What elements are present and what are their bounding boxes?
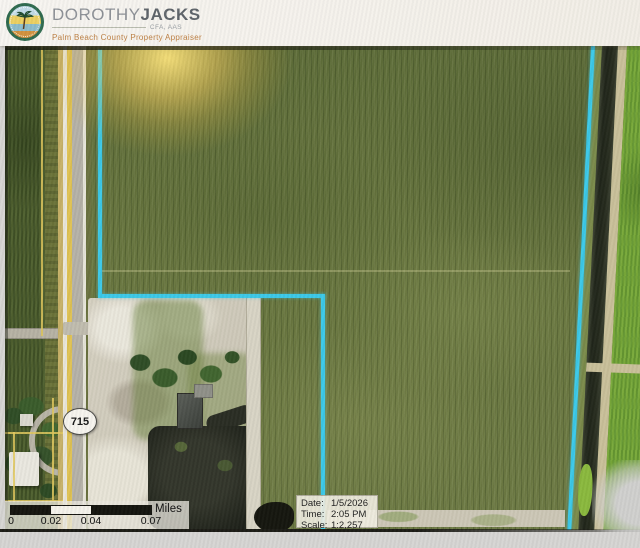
site-header: DOROTHYJACKS CFA, AAS Palm Beach County … [0, 0, 640, 46]
scale-tick-2: 0.04 [81, 515, 101, 527]
scale-tick-0: 0 [8, 515, 14, 527]
map-edge-left [5, 46, 8, 530]
shed-west [20, 414, 33, 426]
county-seal-logo[interactable] [6, 3, 44, 41]
map-canvas[interactable]: 715 0 0.02 0.04 0.07 Miles Date:1/5/2026… [5, 46, 640, 530]
brand-block: DOROTHYJACKS CFA, AAS Palm Beach County … [52, 6, 252, 42]
credentials-rule [52, 27, 146, 28]
parcel-line-yellow-v1 [13, 432, 15, 502]
field-seam-line [100, 270, 570, 272]
scale-unit-label: Miles [155, 503, 182, 515]
scale-tick-1: 0.02 [41, 515, 61, 527]
brand-credentials-row: CFA, AAS [52, 24, 182, 31]
map-edge-top [5, 46, 640, 50]
parcel-boundary-notch-top [98, 294, 325, 298]
time-value: 2:05 PM [331, 509, 366, 520]
parcel-line-yellow-v2 [52, 398, 54, 502]
time-label: Time: [301, 509, 331, 520]
canal-path-west [5, 328, 63, 339]
scale-bar [10, 505, 152, 515]
map-edge-bottom [0, 529, 640, 532]
parcel-line-yellow-vertical [41, 46, 43, 336]
scale-bar-segment [91, 506, 151, 514]
farm-driveway [63, 322, 91, 335]
brand-name: DOROTHYJACKS [52, 6, 252, 23]
date-value: 1/5/2026 [331, 498, 368, 509]
info-date-row: Date:1/5/2026 [301, 498, 377, 509]
brand-credentials: CFA, AAS [150, 24, 182, 31]
route-715-label: 715 [71, 416, 89, 428]
farm-path-vertical [246, 298, 261, 530]
farm-building [177, 393, 203, 429]
scale-bar-segment [11, 506, 51, 514]
farm-building-small [194, 384, 213, 398]
scale-tick-3: 0.07 [141, 515, 161, 527]
map-info-box: Date:1/5/2026 Time:2:05 PM Scale:1:2,257 [296, 495, 378, 528]
route-715-shield: 715 [63, 408, 97, 435]
tree-shadow-blob [254, 502, 294, 530]
brand-last-name: JACKS [141, 5, 201, 24]
date-label: Date: [301, 498, 331, 509]
scale-bar-segment [51, 506, 91, 514]
brand-subtitle: Palm Beach County Property Appraiser [52, 33, 252, 42]
screen-photo-frame: 715 0 0.02 0.04 0.07 Miles Date:1/5/2026… [0, 0, 640, 548]
info-time-row: Time:2:05 PM [301, 509, 377, 520]
farmstead-area [88, 298, 260, 530]
brand-first-name: DOROTHY [52, 5, 141, 24]
photo-corner-smudge [592, 460, 640, 532]
road-sr715 [58, 46, 91, 530]
parcel-boundary-west [98, 49, 102, 296]
palm-tree-icon [16, 9, 34, 36]
